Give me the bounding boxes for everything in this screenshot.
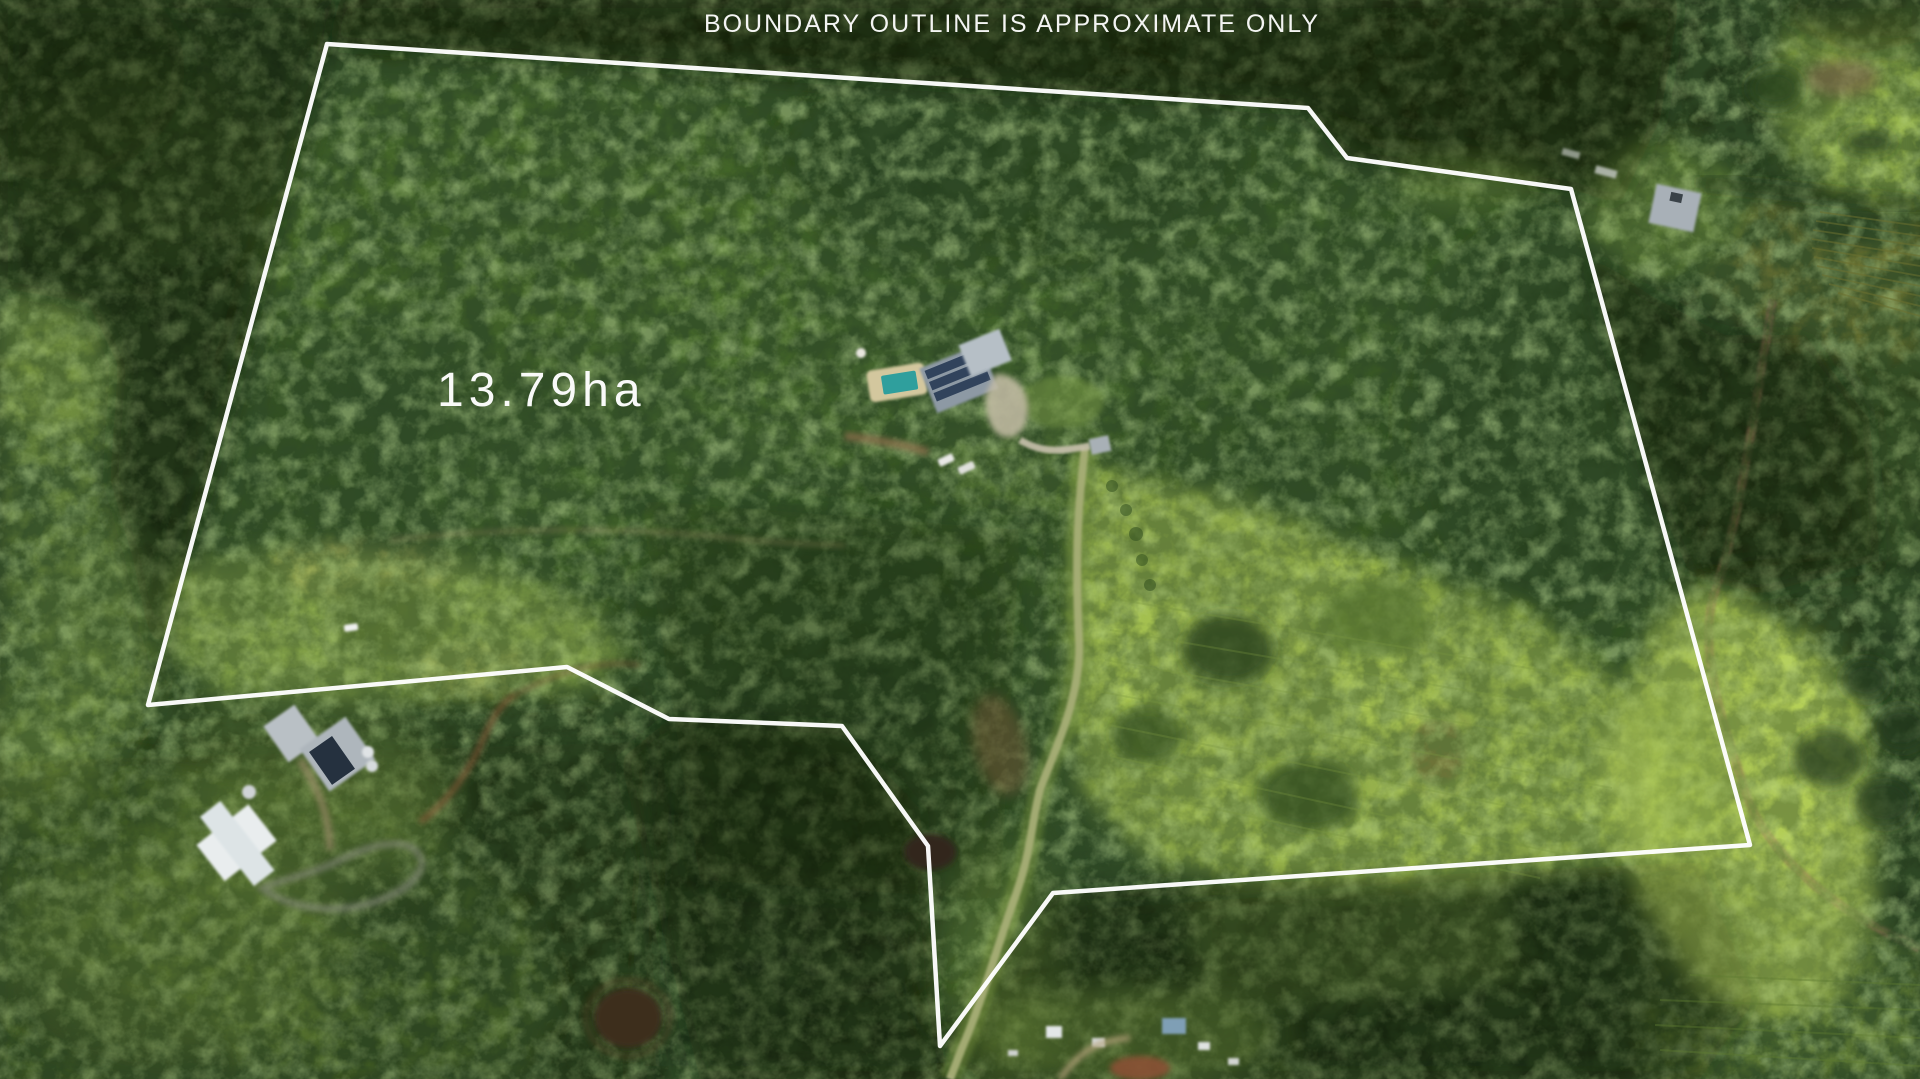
svg-text:BOUNDARY OUTLINE IS APPROXIMAT: BOUNDARY OUTLINE IS APPROXIMATE ONLY [704,10,1320,38]
svg-text:13.79ha: 13.79ha [437,364,646,417]
